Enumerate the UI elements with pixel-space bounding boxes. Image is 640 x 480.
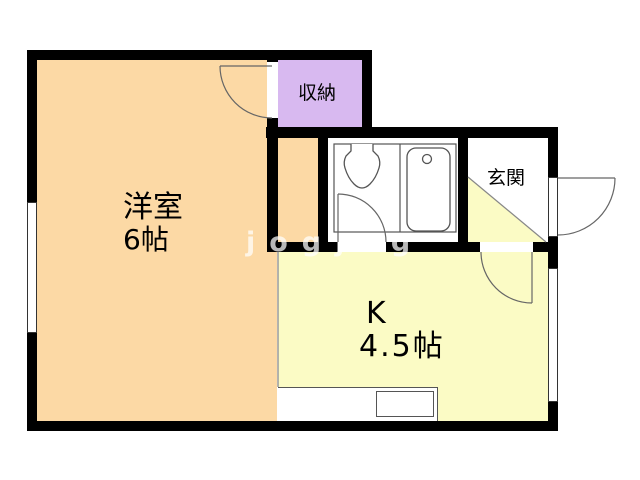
entrance-label: 玄関 [487, 169, 525, 188]
closet-label: 収納 [298, 84, 336, 103]
western-room-label: 洋室 [123, 193, 183, 223]
toilet-icon [344, 144, 380, 188]
floorplan-canvas: jogjog [0, 0, 640, 480]
kitchen-label: K [366, 299, 386, 329]
kitchen-size: 4.5帖 [359, 332, 445, 362]
front-door-arc [558, 178, 615, 235]
western-room-size: 6帖 [123, 226, 169, 254]
fixtures-layer [0, 0, 640, 480]
bathroom-door-arc [338, 194, 386, 242]
bathtub-icon [407, 148, 450, 231]
closet-door-arc [220, 66, 272, 118]
kitchen-door-arc [481, 252, 532, 303]
